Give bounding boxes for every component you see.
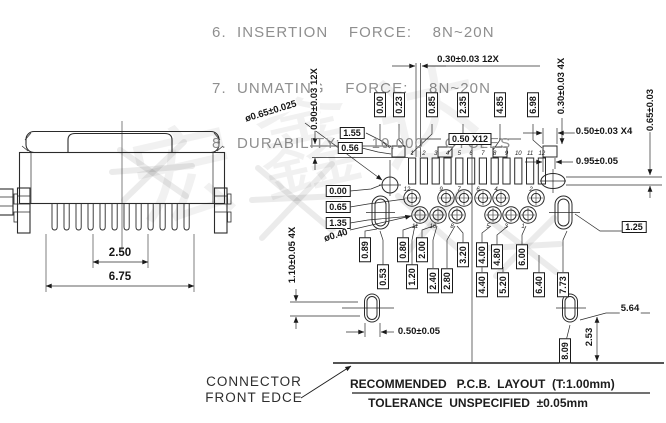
pad-number: 3: [434, 151, 437, 157]
dim-label-c120: 1.20: [406, 265, 418, 290]
front-view-dim-width: 6.75: [108, 272, 132, 282]
connector-front-edge-callout: CONNECTOR FRONT EDCE: [199, 374, 309, 405]
dim-label-b056: 0.56: [338, 142, 363, 154]
pad-number: 11: [527, 151, 533, 157]
dim-label-c053: 0.53: [377, 265, 389, 290]
dim-label-c280: 2.80: [441, 269, 453, 294]
pad-number: 2: [422, 151, 425, 157]
dim-label-a600: 6.00: [516, 245, 528, 270]
dim-label-t698: 6.98: [527, 93, 539, 118]
technical-drawing-page: 宏鑫达: [0, 0, 666, 423]
hole-number: 8: [450, 224, 453, 230]
dim-label-l000: 0.00: [326, 185, 351, 197]
dim-label-t085: 0.85: [426, 93, 438, 118]
hole-number: 11: [412, 224, 418, 230]
hole-number: 4: [494, 187, 497, 193]
dim-label-t485: 4.85: [494, 93, 506, 118]
front-view-dim-pitch: 2.50: [108, 248, 132, 258]
dim-label-a080: 0.80: [397, 238, 409, 263]
dim-label-right_095: 0.95±0.05: [575, 157, 619, 167]
hole-number: 7: [457, 187, 460, 193]
dim-label-c240: 2.40: [427, 269, 439, 294]
pad-number: 10: [515, 151, 522, 157]
dim-label-c640: 6.40: [533, 273, 545, 298]
dim-label-pad_h: 0.90±0.03 12X: [310, 67, 320, 131]
pad-number: 12: [539, 151, 546, 157]
pad-number: 9: [505, 151, 508, 157]
pad-number: 6: [469, 151, 472, 157]
dim-label-b50x12: 0.50 X12: [448, 133, 491, 145]
dim-label-x4_050: 0.50±0.03 X4: [575, 127, 633, 137]
dim-label-d564: 5.64: [620, 304, 641, 314]
dim-label-l065: 0.65: [326, 201, 351, 213]
dim-label-a400: 4.00: [476, 243, 488, 268]
pcb-tolerance-note: TOLERANCE UNSPECIFIED ±0.05mm: [353, 396, 603, 410]
dim-label-c520: 5.20: [497, 273, 509, 298]
dim-label-t235: 2.35: [457, 93, 469, 118]
pad-number: 1: [410, 151, 413, 157]
dim-label-a089: 0.89: [359, 238, 371, 263]
dim-label-d5050: 0.50±0.05: [397, 327, 441, 337]
pad-number: 4: [446, 151, 449, 157]
hole-number: 2: [529, 187, 532, 193]
dim-label-right_065: 0.65±0.03: [646, 88, 656, 132]
hole-number: 5: [486, 224, 489, 230]
dim-label-v253: 2.53: [585, 327, 595, 348]
pad-number: 5: [458, 151, 461, 157]
hole-number: 9: [439, 187, 442, 193]
dim-label-gap4x: 0.30±0.03 4X: [557, 57, 567, 115]
dim-label-a480: 4.80: [491, 245, 503, 270]
hole-number: 6: [476, 187, 479, 193]
pad-number: 7: [481, 151, 484, 157]
hole-number: 10: [430, 224, 437, 230]
hole-number: 1: [521, 224, 524, 230]
dim-label-a320: 3.20: [457, 243, 469, 268]
dim-label-b155: 1.55: [340, 127, 365, 139]
dim-label-t000: 0.00: [374, 93, 386, 118]
dim-label-c773: 7.73: [557, 273, 569, 298]
hole-number: 12: [404, 187, 411, 193]
dim-label-b125: 1.25: [622, 221, 647, 233]
hole-number: 3: [504, 224, 507, 230]
pad-number: 8: [493, 151, 496, 157]
dim-label-a200: 2.00: [416, 238, 428, 263]
dim-label-c440: 4.40: [476, 273, 488, 298]
dim-label-t023: 0.23: [393, 93, 405, 118]
dim-label-v110: 1.10±0.05 4X: [288, 226, 298, 284]
dim-label-b809: 8.09: [559, 339, 571, 364]
dim-label-top_gap: 0.30±0.03 12X: [436, 55, 500, 65]
pcb-layout-title: RECOMMENDED P.C.B. LAYOUT (T:1.00mm): [350, 377, 600, 391]
